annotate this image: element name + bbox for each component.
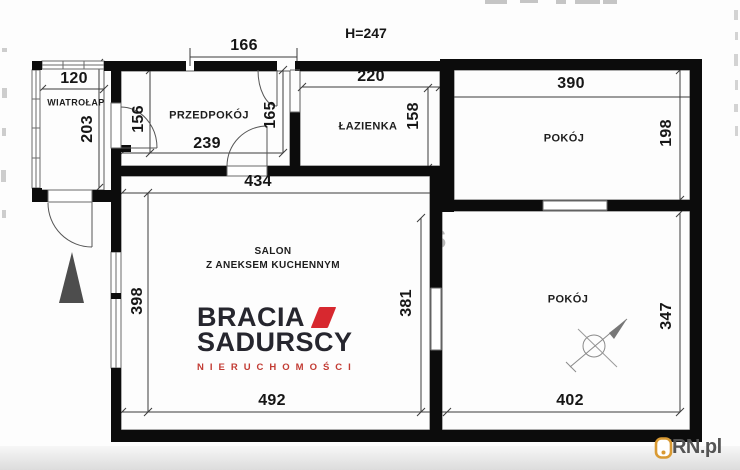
floorplan-image: S bbox=[0, 0, 740, 470]
dim-120: 120 bbox=[60, 71, 88, 87]
agency-logo-mark bbox=[311, 307, 336, 328]
ceiling-height-label: H=247 bbox=[345, 26, 387, 40]
dimension-lines bbox=[38, 48, 701, 416]
dim-165: 165 bbox=[263, 101, 279, 129]
portal-watermark: KRN.pl bbox=[654, 436, 722, 459]
north-arrow-icon bbox=[59, 252, 84, 303]
photo-edge-shadow bbox=[0, 446, 740, 470]
dim-434: 434 bbox=[244, 174, 272, 190]
dim-220: 220 bbox=[357, 69, 385, 85]
dim-198: 198 bbox=[659, 119, 675, 147]
window-wiatrolap-top bbox=[42, 61, 104, 69]
room-label-lazienka: ŁAZIENKA bbox=[339, 122, 398, 133]
room-label-pokoj-bottom: POKÓJ bbox=[548, 295, 589, 306]
dim-203: 203 bbox=[80, 115, 96, 143]
dim-402: 402 bbox=[556, 393, 584, 409]
room-label-salon-sub: Z ANEKSEM KUCHENNYM bbox=[206, 261, 340, 271]
dim-347: 347 bbox=[659, 302, 675, 330]
ceiling-fan-icon bbox=[566, 319, 627, 372]
room-label-pokoj-top: POKÓJ bbox=[544, 134, 585, 145]
agency-name-line2: SADURSCY bbox=[197, 330, 357, 355]
room-label-salon: SALON bbox=[255, 247, 292, 257]
dim-398: 398 bbox=[130, 287, 146, 315]
room-label-przedpokoj: PRZEDPOKÓJ bbox=[169, 111, 249, 122]
dim-166: 166 bbox=[230, 38, 258, 54]
dim-390: 390 bbox=[557, 76, 585, 92]
window-wiatrolap-left bbox=[32, 70, 40, 188]
padlock-icon bbox=[654, 436, 673, 460]
dim-239: 239 bbox=[193, 136, 221, 152]
dim-492: 492 bbox=[258, 393, 286, 409]
dim-158: 158 bbox=[406, 102, 422, 130]
dim-156: 156 bbox=[131, 105, 147, 133]
dim-381: 381 bbox=[399, 289, 415, 317]
room-label-wiatrolap: WIATROŁAP bbox=[47, 99, 104, 108]
window-salon-left bbox=[111, 252, 121, 368]
agency-logo: BRACIA SADURSCY NIERUCHOMOŚCI bbox=[197, 305, 357, 373]
agency-tagline: NIERUCHOMOŚCI bbox=[197, 362, 357, 373]
